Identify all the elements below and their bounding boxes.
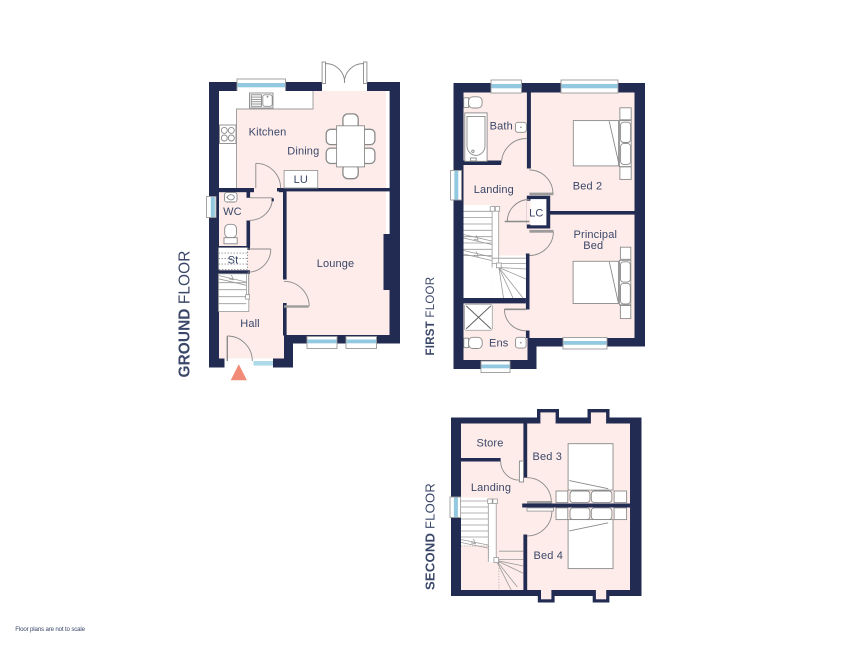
svg-text:SECOND FLOOR: SECOND FLOOR (423, 483, 438, 590)
svg-text:FIRST FLOOR: FIRST FLOOR (425, 277, 437, 356)
svg-text:St: St (228, 255, 239, 267)
svg-text:Bed: Bed (583, 240, 603, 252)
svg-text:LU: LU (294, 174, 308, 186)
svg-text:Landing: Landing (474, 184, 514, 196)
svg-text:Bed 2: Bed 2 (573, 181, 603, 193)
svg-text:GROUND FLOOR: GROUND FLOOR (177, 251, 194, 378)
svg-text:Bed 4: Bed 4 (534, 550, 564, 562)
svg-text:LC: LC (529, 207, 543, 219)
svg-text:Bath: Bath (490, 120, 513, 132)
svg-text:Bed 3: Bed 3 (533, 451, 563, 463)
svg-text:Lounge: Lounge (317, 258, 355, 270)
svg-text:Store: Store (476, 438, 503, 450)
svg-text:Floor plans are not to scale: Floor plans are not to scale (15, 626, 85, 633)
svg-text:Ens: Ens (489, 338, 509, 350)
svg-text:Kitchen: Kitchen (249, 126, 287, 138)
svg-text:Dining: Dining (287, 145, 319, 157)
svg-text:WC: WC (223, 206, 242, 218)
svg-text:Landing: Landing (471, 482, 511, 494)
svg-text:Hall: Hall (240, 318, 260, 330)
